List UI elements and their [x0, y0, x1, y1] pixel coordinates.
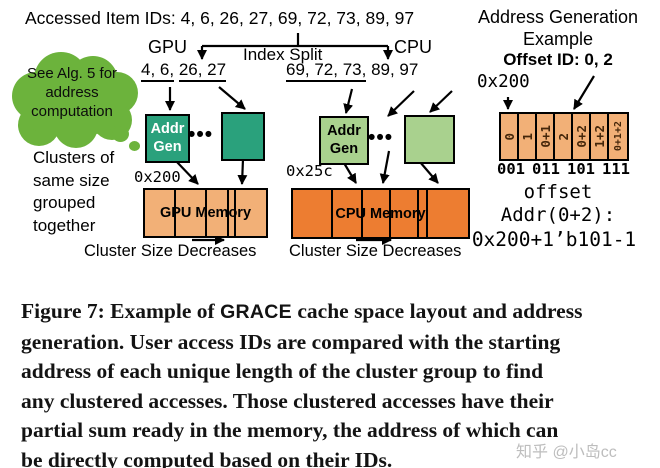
- gpu-cluster-size-note: Cluster Size Decreases: [84, 242, 256, 261]
- gpu-id-group-2: 26, 27: [179, 60, 226, 82]
- caption-line: any clustered accesses. Those clustered …: [21, 387, 653, 417]
- figure-7-screenshot: Accessed Item IDs: 4, 6, 26, 27, 69, 72,…: [0, 0, 660, 468]
- offset-id-arrow: [574, 76, 594, 109]
- cpu-memory-label: CPU Memory: [293, 190, 468, 237]
- caption-line: address of each unique length of the clu…: [21, 357, 653, 387]
- caption-line: Figure 7: Example of GRACE cache space l…: [21, 297, 653, 328]
- gpu-ids-arrow-2: [219, 87, 245, 109]
- clusters-note-line: grouped: [33, 192, 114, 215]
- cpu-base-address: 0x25c: [286, 162, 333, 180]
- cloud-bubble: [129, 141, 140, 151]
- cpu-memory-box: CPU Memory: [291, 188, 470, 239]
- binary-label: 111: [602, 160, 630, 178]
- offset-cell-label: 1: [520, 133, 535, 141]
- gpu-label: GPU: [148, 37, 187, 58]
- example-base-address: 0x200: [477, 72, 530, 92]
- gpu-id-group-1: 4, 6,: [141, 60, 174, 82]
- offset-table-cell: 0+2: [573, 114, 591, 159]
- gpu-addr-gen-box: Addr Gen: [145, 114, 190, 163]
- clusters-note-line: together: [33, 215, 114, 238]
- caption-line: generation. User access IDs are compared…: [21, 328, 653, 358]
- offset-table-cell: 2: [555, 114, 573, 159]
- binary-label: 011: [532, 160, 560, 178]
- caption-text: cache space layout and address: [292, 299, 582, 323]
- offset-table-cell: 0+1: [537, 114, 555, 159]
- cpu-ids-arrow-1: [346, 89, 352, 113]
- addr-gen-label: Addr: [327, 123, 361, 141]
- offset-table: 010+120+21+20+1+2: [499, 112, 629, 161]
- accessed-ids-label: Accessed Item IDs:: [25, 8, 176, 28]
- cpu-id-group-2: 89, 97: [371, 60, 418, 79]
- offset-cell-label: 0+2: [574, 125, 589, 148]
- cloud-note-line: computation: [6, 102, 138, 121]
- address-example-title: Address Generation Example: [458, 6, 658, 50]
- addr-gen-label: Addr: [151, 121, 185, 139]
- caption-text: Figure 7: Example of: [21, 299, 220, 323]
- cpu-box2-mem-arrow: [420, 162, 438, 183]
- offset-cell-label: 2: [556, 133, 571, 141]
- cpu-id-group-1: 69, 72, 73,: [286, 60, 366, 82]
- cpu-cluster-size-note: Cluster Size Decreases: [289, 242, 461, 261]
- cpu-ids-arrow-3: [430, 91, 452, 112]
- cpu-cluster-box: [404, 115, 455, 164]
- gpu-ellipsis: •••: [188, 123, 213, 147]
- addr-formula-line2: 0x200+1’b101-1: [448, 228, 660, 251]
- zhihu-watermark: 知乎 @小岛cc: [516, 438, 617, 462]
- gpu-memory-box: GPU Memory: [143, 188, 268, 238]
- offset-cell-label: 0+1: [538, 125, 553, 148]
- offset-table-cell: 0: [501, 114, 519, 159]
- cpu-ellipsis: •••: [368, 126, 393, 150]
- address-example-title-line: Address Generation: [458, 6, 658, 28]
- clusters-note-line: Clusters of: [33, 147, 114, 170]
- clusters-note: Clusters of same size grouped together: [33, 147, 114, 237]
- cpu-addrgen-mem-arrow: [344, 163, 356, 183]
- accessed-ids-values: 4, 6, 26, 27, 69, 72, 73, 89, 97: [181, 8, 415, 28]
- cpu-id-list: 69, 72, 73, 89, 97: [286, 60, 418, 80]
- cpu-addr-gen-box: Addr Gen: [319, 116, 369, 165]
- cloud-note: See Alg. 5 for address computation: [6, 64, 138, 121]
- offset-table-cell: 1+2: [591, 114, 609, 159]
- cpu-ids-arrow-2: [388, 91, 414, 116]
- offset-table-cell: 1: [519, 114, 537, 159]
- offset-id-label: Offset ID: 0, 2: [458, 50, 658, 70]
- grace-wordmark: GRACE: [220, 301, 292, 323]
- binary-offset-labels: 001 011 101 111: [497, 160, 630, 178]
- addr-formula-line1: Addr(0+2):: [458, 204, 658, 226]
- offset-cell-label: 0+1+2: [613, 121, 624, 151]
- cpu-mid-mem-arrow: [383, 151, 389, 183]
- addr-gen-label: Gen: [153, 139, 181, 157]
- addr-gen-label: Gen: [330, 141, 358, 159]
- binary-label: 101: [567, 160, 595, 178]
- address-example-title-line: Example: [458, 28, 658, 50]
- offset-cell-label: 0: [502, 133, 517, 141]
- offset-word: offset: [458, 181, 658, 203]
- cloud-note-line: address: [6, 83, 138, 102]
- cloud-bubble: [112, 126, 129, 142]
- cloud-note-line: See Alg. 5 for: [6, 64, 138, 83]
- cpu-label: CPU: [394, 37, 432, 58]
- binary-label: 001: [497, 160, 525, 178]
- gpu-base-address: 0x200: [134, 168, 181, 186]
- accessed-ids-line: Accessed Item IDs: 4, 6, 26, 27, 69, 72,…: [25, 8, 414, 29]
- gpu-box2-mem-arrow: [242, 159, 243, 184]
- clusters-note-line: same size: [33, 170, 114, 193]
- gpu-memory-label: GPU Memory: [145, 190, 266, 236]
- offset-cell-label: 1+2: [592, 125, 607, 148]
- gpu-id-list: 4, 6, 26, 27: [141, 60, 226, 80]
- gpu-cluster-box: [221, 112, 265, 161]
- offset-table-cell: 0+1+2: [609, 114, 627, 159]
